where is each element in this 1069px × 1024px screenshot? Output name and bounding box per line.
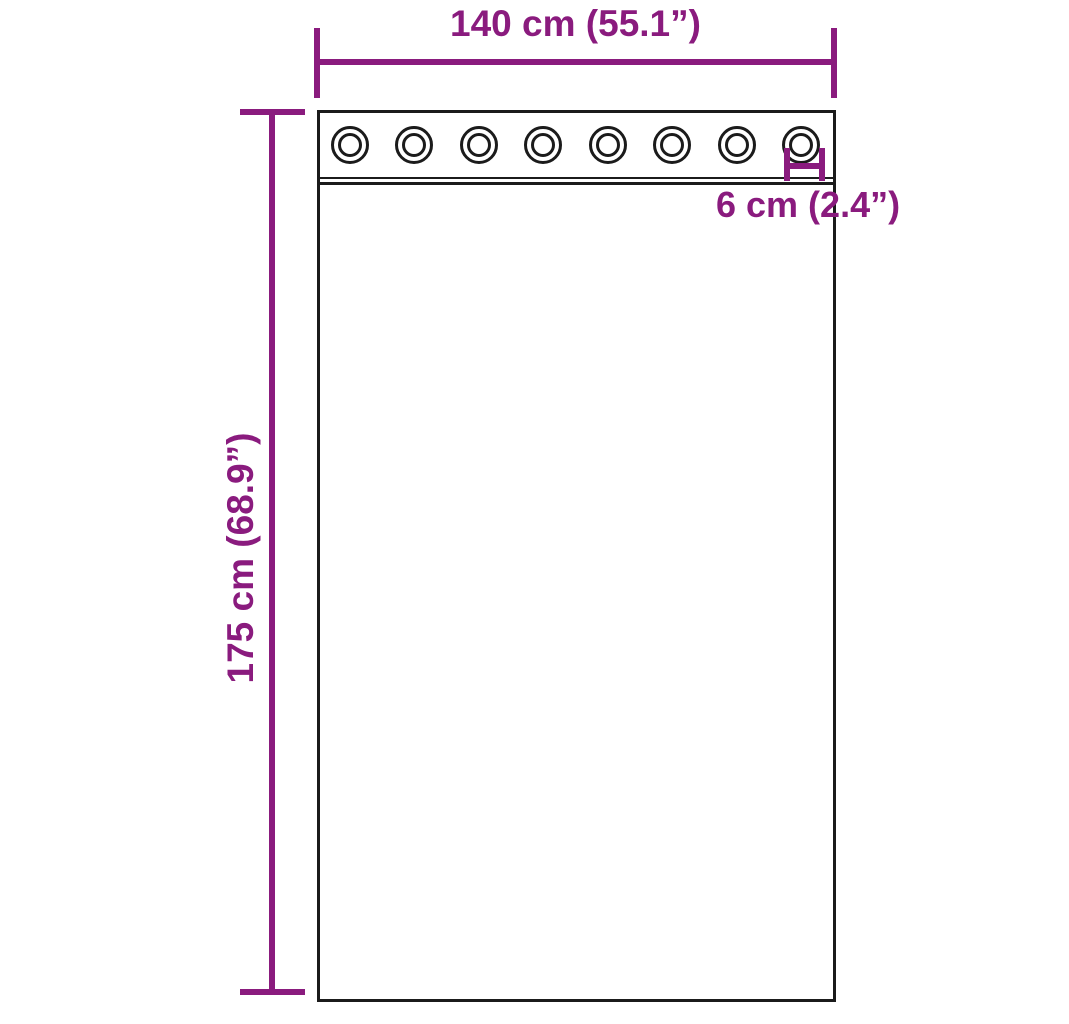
height-dimension-top-cap [240, 109, 305, 115]
grommet-icon [653, 126, 691, 164]
grommet-inner-ring [725, 133, 749, 157]
width-dimension-label: 140 cm (55.1”) [317, 5, 834, 43]
grommet-icon [460, 126, 498, 164]
grommet-inner-ring [531, 133, 555, 157]
grommet-inner-ring [789, 133, 813, 157]
height-dimension-line [269, 112, 275, 992]
curtain-dimension-diagram: 140 cm (55.1”) 175 cm (68.9”) 6 cm (2.4”… [0, 0, 1069, 1024]
header-band-line-upper [317, 177, 836, 179]
height-dimension-bottom-cap [240, 989, 305, 995]
width-dimension-line [317, 59, 834, 65]
height-dimension-label: 175 cm (68.9”) [222, 433, 260, 684]
grommet-inner-ring [467, 133, 491, 157]
curtain-panel-outline [317, 110, 836, 1002]
grommet-inner-ring [660, 133, 684, 157]
grommet-dimension-label: 6 cm (2.4”) [716, 186, 900, 224]
width-dimension-left-cap [314, 28, 320, 98]
grommet-icon [589, 126, 627, 164]
grommet-inner-ring [596, 133, 620, 157]
grommet-inner-ring [402, 133, 426, 157]
grommet-icon [718, 126, 756, 164]
grommet-icon [331, 126, 369, 164]
grommet-inner-ring [338, 133, 362, 157]
grommet-dimension-crossbar [784, 163, 825, 169]
width-dimension-right-cap [831, 28, 837, 98]
